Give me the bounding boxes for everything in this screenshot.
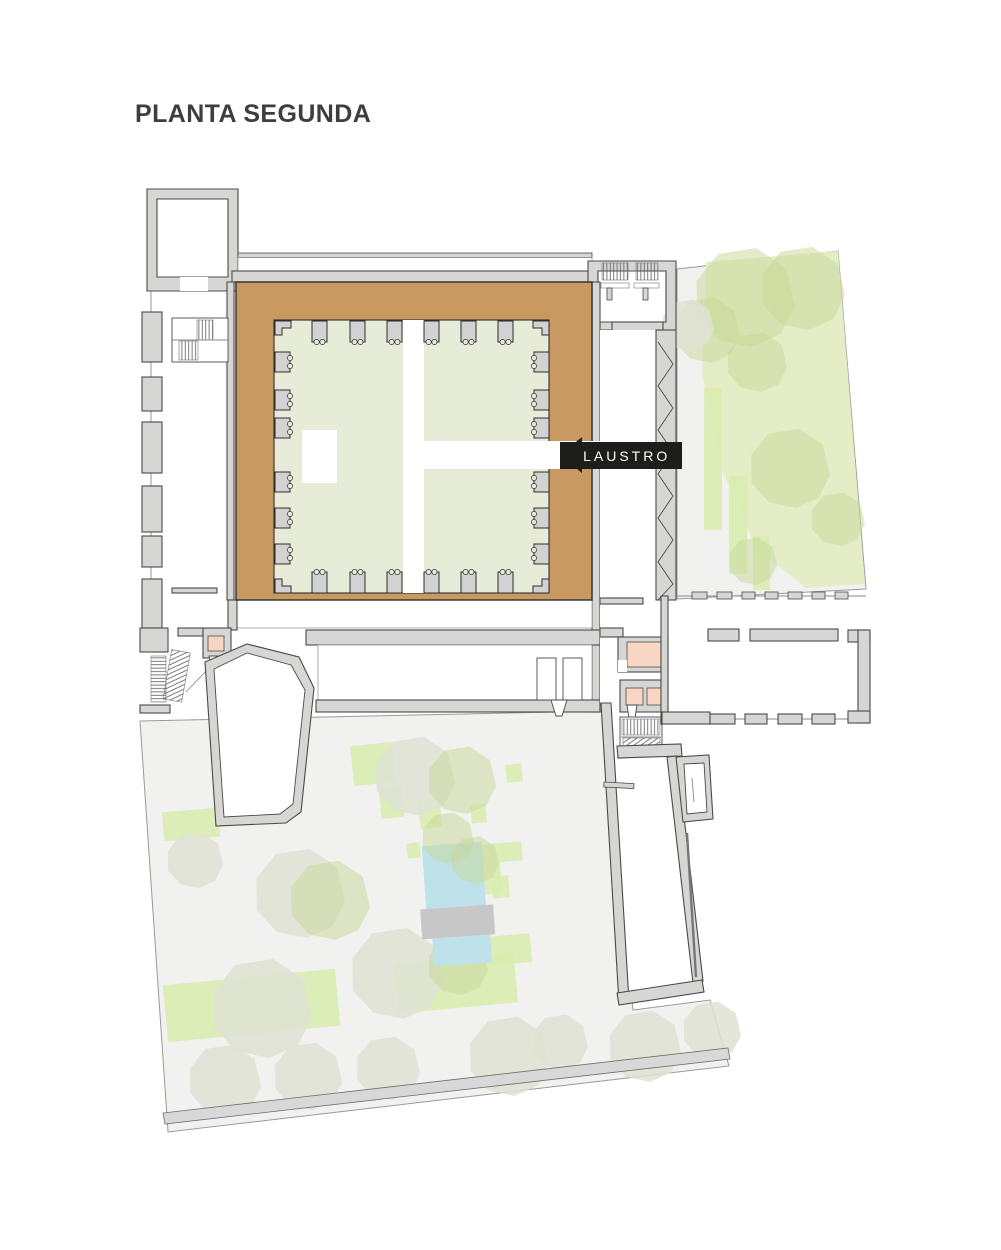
hall-north-wall — [306, 630, 600, 645]
north-exterior-wall — [238, 253, 592, 258]
southeast-building — [601, 703, 713, 1005]
courtyard-path-vertical — [403, 320, 424, 593]
stairs-west-wing — [172, 318, 228, 362]
pink-room-b — [626, 688, 643, 705]
wall-stub — [172, 588, 217, 593]
north-wall — [232, 271, 596, 282]
claustro-annotation: CLAUSTRO — [560, 437, 682, 473]
stairs-southwest — [151, 650, 206, 703]
pink-room-a — [627, 642, 663, 667]
cloister — [236, 282, 600, 600]
east-wing-hall — [600, 330, 656, 640]
arrow-left-icon — [560, 437, 582, 473]
east-wing-west-wall — [592, 282, 600, 712]
south-corridor — [237, 600, 592, 628]
door-gap — [180, 277, 208, 291]
northeast-stair-room — [588, 261, 676, 331]
funnel-door — [627, 705, 637, 718]
courtyard-opening — [302, 430, 337, 483]
wall-stub — [600, 598, 643, 604]
chapter-room — [205, 644, 314, 826]
floor-plan-page: PLANTA SEGUNDA — [0, 0, 1001, 1250]
pier-room — [661, 592, 870, 724]
floor-plan-drawing — [0, 0, 1001, 1250]
north-east-garden — [663, 247, 866, 599]
northwest-block — [147, 189, 238, 291]
north-gallery — [238, 258, 592, 272]
